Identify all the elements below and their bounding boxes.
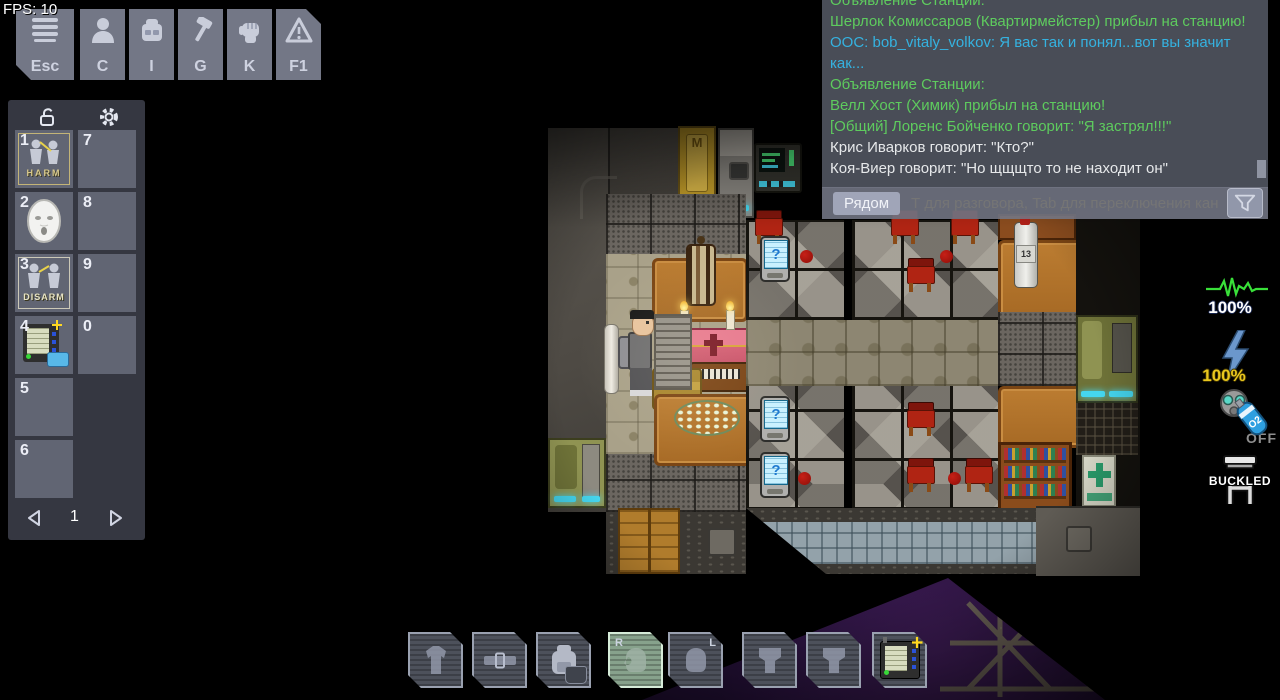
wall-console[interactable] xyxy=(754,143,802,193)
pda-pen-icon xyxy=(47,352,69,367)
chapel-top-wall xyxy=(606,194,746,256)
walkway-floor xyxy=(746,320,998,386)
health-percent: 100% xyxy=(1206,298,1254,318)
hotbar-panel: HARM 1 2 DISARM 3 4 5 6 7 8 9 0 1 xyxy=(8,100,145,540)
airlock-window xyxy=(729,162,749,180)
inventory-slot-exosuit[interactable] xyxy=(408,632,463,688)
power-percent: 100% xyxy=(1200,366,1248,386)
menu-button-crafting[interactable]: G xyxy=(178,9,223,80)
chat-messages: Объявление Станции: Шерлок Комиссаров (К… xyxy=(822,0,1268,179)
service-table-top[interactable] xyxy=(998,240,1082,318)
red-dot-marker xyxy=(948,472,961,485)
menu-button-esc[interactable]: Esc xyxy=(16,9,74,80)
red-dot-marker xyxy=(940,250,953,263)
right-hand-label: R xyxy=(615,637,623,649)
console-buttons xyxy=(759,181,795,187)
chat-filter-button[interactable] xyxy=(1227,188,1263,218)
menu-button-character[interactable]: C xyxy=(80,9,125,80)
medical-sign xyxy=(1082,455,1116,507)
hotbar-slot-3-disarm[interactable]: DISARM 3 xyxy=(15,254,73,312)
hotbar-slot-7[interactable]: 7 xyxy=(78,130,136,188)
buckled-status: BUCKLED xyxy=(1202,474,1278,488)
character-body xyxy=(628,332,652,370)
service-table-bottom[interactable] xyxy=(998,386,1082,448)
inventory-slot-left-hand[interactable]: L xyxy=(668,632,723,688)
bottle-label: 13 xyxy=(1016,245,1036,263)
red-dot-marker xyxy=(800,250,813,263)
chaplain-character[interactable] xyxy=(616,310,658,400)
character-hair xyxy=(630,310,654,319)
girder-lattice xyxy=(940,585,1120,700)
hotbar-next-page-button[interactable] xyxy=(108,508,124,528)
chat-scrollbar-thumb[interactable] xyxy=(1257,160,1266,178)
east-lattice-floor xyxy=(1076,403,1138,455)
southwest-airlock[interactable] xyxy=(548,438,606,508)
backpack-mini-bag-badge xyxy=(565,666,587,684)
console-screen xyxy=(759,148,785,172)
mask-icon xyxy=(25,198,63,244)
unknown-tablet-item[interactable]: ? xyxy=(760,452,790,498)
hotbar-slot-8[interactable]: 8 xyxy=(78,192,136,250)
console-lamp xyxy=(789,150,794,166)
menu-icon xyxy=(31,17,59,43)
character-legs xyxy=(630,368,652,392)
altar-cross-arm xyxy=(704,340,723,346)
hotbar-slot-0[interactable]: 0 xyxy=(78,316,136,374)
hotbar-slot-4-pda[interactable]: 4 xyxy=(15,316,73,374)
left-hand-icon xyxy=(681,645,711,675)
chat-message: Шерлок Комиссаров (Квартирмейстер) прибы… xyxy=(830,11,1260,32)
inventory-slot-right-hand[interactable]: R xyxy=(608,632,663,688)
gear-icon[interactable] xyxy=(98,106,120,128)
hotbar-slot-6[interactable]: 6 xyxy=(15,440,73,498)
books-row xyxy=(1004,484,1066,499)
red-dot-marker xyxy=(798,472,811,485)
exosuit-icon xyxy=(419,644,453,676)
fps-counter: FPS: 10 xyxy=(3,1,57,18)
hammer-icon xyxy=(188,17,214,43)
pocket-icon xyxy=(753,644,787,676)
menu-button-combat[interactable]: K xyxy=(227,9,272,80)
hotbar-slot-2-mask[interactable]: 2 xyxy=(15,192,73,250)
chat-message: Объявление Станции: xyxy=(830,0,1260,11)
inventory-slot-belt[interactable] xyxy=(472,632,527,688)
hotbar-prev-page-button[interactable] xyxy=(26,508,42,528)
chat-input[interactable] xyxy=(909,194,1221,213)
right-hand-icon xyxy=(621,645,651,675)
hotbar-slot-1-harm[interactable]: HARM 1 xyxy=(15,130,73,188)
corridor-east-wall xyxy=(1036,506,1140,576)
chat-message: Велл Хост (Химик) прибыл на станцию! xyxy=(830,95,1260,116)
menu-button-help[interactable]: F1 xyxy=(276,9,321,80)
chat-message: OOC: bob_vitaly_volkov: Я вас так и поня… xyxy=(830,32,1260,74)
unknown-tablet-item[interactable]: ? xyxy=(760,236,790,282)
books-row xyxy=(1004,466,1066,481)
wall-hatch xyxy=(708,528,736,556)
hotbar-slot-5[interactable]: 5 xyxy=(15,378,73,436)
gold-airlock-emblem: M xyxy=(686,134,708,192)
fist-icon xyxy=(237,17,263,43)
menu-button-inventory[interactable]: I xyxy=(129,9,174,80)
service-wall xyxy=(998,312,1076,386)
chapel-lantern[interactable] xyxy=(686,236,716,312)
wreath[interactable] xyxy=(674,400,740,436)
bottle-13[interactable]: 13 xyxy=(1014,222,1038,288)
chat-message: Коя-Виер говорит: "Но щщщто то не находи… xyxy=(830,158,1260,179)
inventory-slot-pda[interactable] xyxy=(872,632,927,688)
character-shoes xyxy=(630,390,652,396)
chat-message: Объявление Станции: xyxy=(830,74,1260,95)
inventory-slot-backpack[interactable] xyxy=(536,632,591,688)
warning-icon xyxy=(285,17,313,43)
wooden-double-door[interactable] xyxy=(618,508,680,574)
inventory-slot-pocket-left[interactable] xyxy=(742,632,797,688)
chat-log-panel[interactable]: Объявление Станции: Шерлок Комиссаров (К… xyxy=(822,0,1268,188)
organ-pipes[interactable] xyxy=(654,314,692,390)
pocket-icon xyxy=(817,644,851,676)
books-row xyxy=(1004,448,1066,463)
corridor-north-wall xyxy=(746,508,1036,522)
filter-icon xyxy=(1233,192,1257,214)
o2-tank-icon[interactable]: O2 xyxy=(1230,394,1272,442)
chat-message: [Общий] Лоренс Бойченко говорит: "Я заст… xyxy=(830,116,1260,137)
chat-channel-button[interactable]: Рядом xyxy=(833,192,900,215)
unlock-icon[interactable] xyxy=(36,106,58,128)
chat-input-bar: Рядом xyxy=(822,187,1268,219)
belt-icon xyxy=(483,644,517,676)
bookshelf[interactable] xyxy=(998,442,1072,512)
hotbar-page-number: 1 xyxy=(70,508,79,526)
east-airlock[interactable] xyxy=(1076,315,1138,403)
candle[interactable] xyxy=(726,310,735,330)
person-icon xyxy=(90,17,116,43)
hotbar-slot-9[interactable]: 9 xyxy=(78,254,136,312)
inventory-slot-pocket-right[interactable] xyxy=(806,632,861,688)
backpack-icon xyxy=(139,17,165,43)
pda-item-icon xyxy=(880,641,920,679)
unknown-tablet-item[interactable]: ? xyxy=(760,396,790,442)
chat-message: Крис Иварков говорит: "Кто?" xyxy=(830,137,1260,158)
character-eye xyxy=(646,321,649,324)
